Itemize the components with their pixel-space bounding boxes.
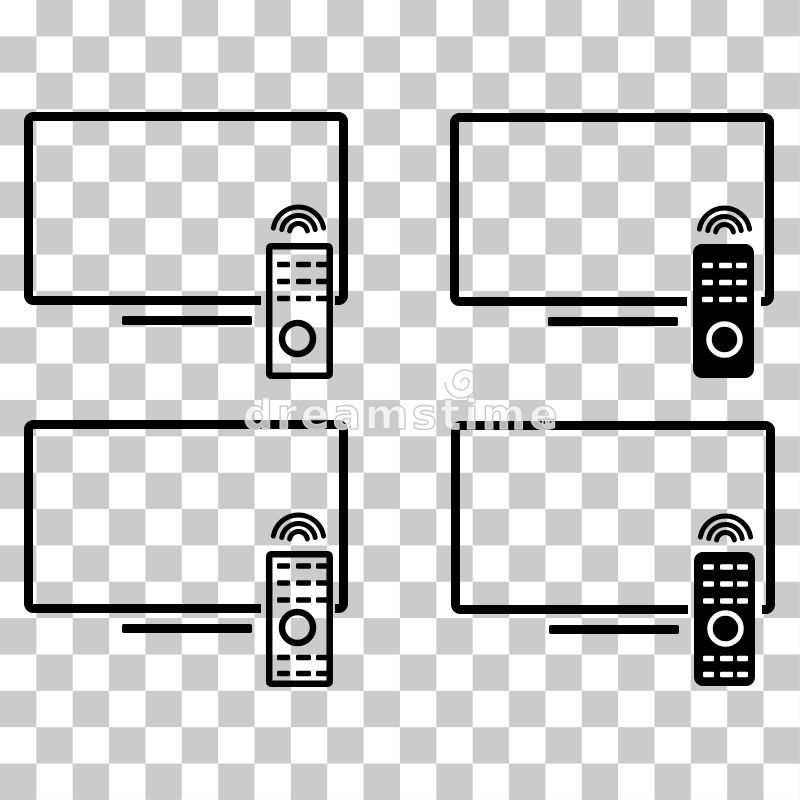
remote-button-dash — [703, 656, 714, 662]
remote-button-dash — [316, 671, 331, 677]
tv-remote-icon-top-right — [455, 118, 770, 379]
remote-button-dash — [719, 297, 732, 303]
remote-control-outline-icon — [269, 554, 331, 684]
tv-stand — [548, 317, 678, 326]
remote-button-dash — [296, 296, 311, 302]
transparency-checkerboard: dreamstime ® — [0, 0, 800, 800]
remote-button-dash — [737, 598, 748, 604]
remote-main-button — [282, 323, 313, 354]
remote-button-dash — [277, 563, 290, 569]
remote-button-dash — [720, 672, 733, 678]
tv-remote-icon-top-left — [29, 117, 344, 376]
remote-button-dash — [736, 263, 747, 269]
remote-button-dash — [277, 262, 290, 268]
remote-button-dash — [720, 564, 733, 570]
remote-button-dash — [316, 279, 331, 285]
remote-button-dash — [720, 656, 733, 662]
remote-button-dash — [720, 581, 733, 587]
remote-button-dash — [720, 598, 733, 604]
remote-button-dash — [296, 655, 311, 661]
remote-button-dash — [737, 581, 748, 587]
remote-button-dash — [277, 279, 290, 285]
remote-button-dash — [702, 280, 713, 286]
signal-waves-icon — [699, 208, 749, 232]
remote-button-dash — [703, 672, 714, 678]
tv-icon-set — [0, 0, 800, 800]
remote-button-dash — [737, 672, 748, 678]
remote-button-dash — [296, 580, 311, 586]
remote-button-dash — [703, 598, 714, 604]
tv-remote-icon-bottom-right — [456, 426, 771, 687]
remote-button-dash — [296, 563, 311, 569]
remote-button-dash — [277, 296, 290, 302]
tv-stand — [549, 625, 679, 634]
remote-button-dash — [296, 262, 311, 268]
remote-button-dash — [316, 580, 331, 586]
remote-button-dash — [736, 297, 747, 303]
signal-waves-icon — [700, 516, 750, 540]
remote-button-dash — [316, 563, 331, 569]
remote-button-dash — [719, 280, 732, 286]
remote-button-dash — [296, 279, 311, 285]
remote-button-dash — [737, 564, 748, 570]
tv-stand — [122, 624, 252, 633]
remote-button-dash — [316, 262, 331, 268]
remote-button-dash — [277, 580, 290, 586]
remote-body — [269, 554, 330, 684]
remote-control-outline-icon — [269, 246, 331, 376]
remote-button-dash — [703, 564, 714, 570]
remote-button-dash — [737, 656, 748, 662]
remote-button-dash — [277, 671, 290, 677]
remote-button-dash — [736, 280, 747, 286]
tv-icon — [29, 117, 344, 326]
tv-stand — [122, 316, 252, 325]
remote-button-dash — [719, 263, 732, 269]
signal-waves-icon — [273, 207, 323, 231]
remote-button-dash — [316, 597, 331, 603]
signal-waves-icon — [273, 515, 323, 539]
remote-body — [694, 552, 755, 686]
remote-button-dash — [702, 297, 713, 303]
remote-button-dash — [702, 263, 713, 269]
remote-button-dash — [277, 655, 290, 661]
remote-button-dash — [296, 597, 311, 603]
remote-button-dash — [316, 296, 331, 302]
remote-button-dash — [277, 597, 290, 603]
remote-main-button — [282, 612, 313, 643]
remote-button-dash — [316, 655, 331, 661]
remote-control-filled-icon — [694, 552, 755, 686]
remote-control-filled-icon — [693, 244, 754, 378]
tv-remote-icon-bottom-left — [29, 425, 344, 684]
remote-button-dash — [703, 581, 714, 587]
remote-button-dash — [296, 671, 311, 677]
